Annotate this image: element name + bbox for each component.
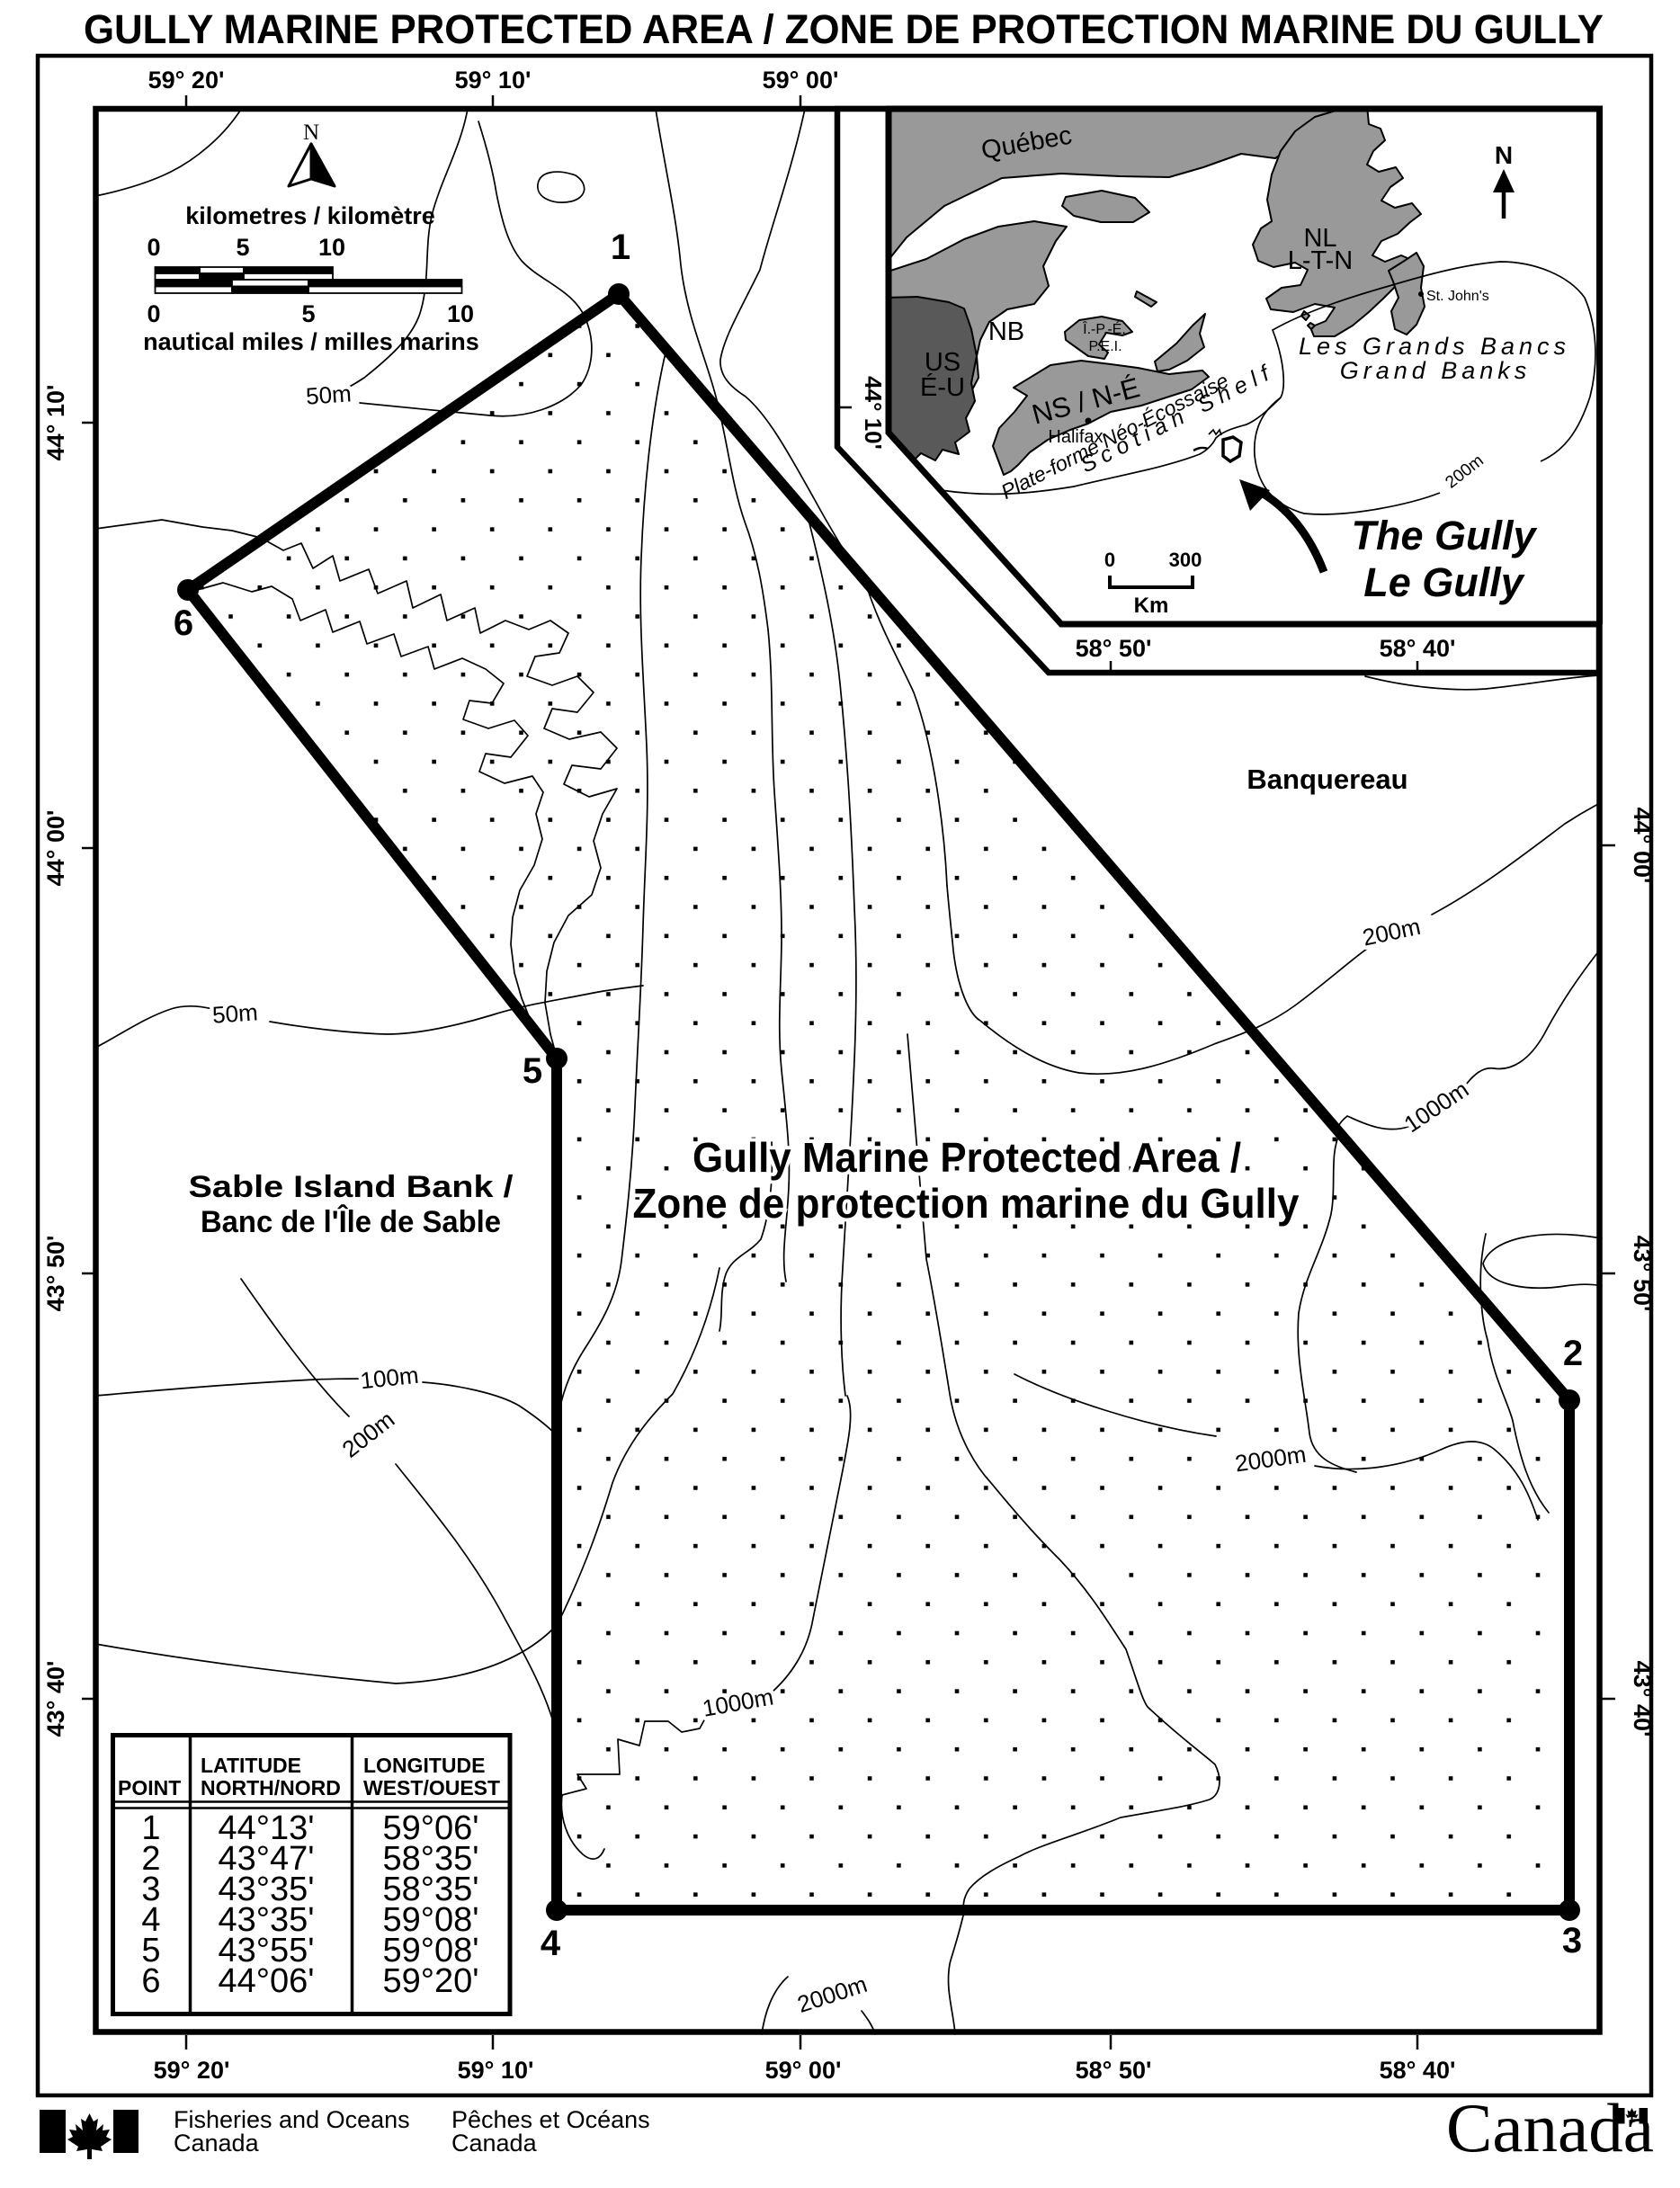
svg-text:Gully Marine Protected Area /: Gully Marine Protected Area / [693, 1134, 1241, 1181]
svg-text:58° 50': 58° 50' [1076, 2057, 1152, 2084]
svg-text:4: 4 [541, 1924, 561, 1963]
svg-text:Les Grands Bancs: Les Grands Bancs [1299, 333, 1570, 360]
svg-text:GULLY MARINE PROTECTED AREA /: GULLY MARINE PROTECTED AREA / ZONE DE PR… [84, 6, 1604, 52]
svg-text:58° 40': 58° 40' [1380, 635, 1456, 662]
svg-text:0: 0 [1104, 549, 1115, 571]
svg-text:59° 20': 59° 20' [148, 67, 225, 94]
svg-text:6: 6 [141, 1962, 160, 2000]
svg-text:Zone de protection marine du G: Zone de protection marine du Gully [633, 1180, 1300, 1227]
svg-text:50m: 50m [211, 998, 259, 1028]
svg-text:6: 6 [174, 603, 193, 643]
svg-text:59° 10': 59° 10' [455, 67, 532, 94]
svg-text:59°20': 59°20' [383, 1962, 479, 2000]
svg-text:Le Gully: Le Gully [1363, 559, 1525, 605]
svg-text:Î.-P.-É.: Î.-P.-É. [1082, 320, 1126, 337]
svg-text:5: 5 [301, 300, 315, 327]
svg-text:Sable Island Bank /: Sable Island Bank / [189, 1170, 514, 1204]
svg-text:LONGITUDE: LONGITUDE [363, 1754, 485, 1777]
svg-text:59° 00': 59° 00' [765, 2057, 842, 2084]
svg-text:Canada: Canada [451, 2130, 538, 2157]
svg-text:43° 50': 43° 50' [1629, 1236, 1656, 1312]
svg-text:Banquereau: Banquereau [1247, 764, 1407, 795]
svg-text:5: 5 [523, 1051, 542, 1091]
svg-text:10: 10 [447, 300, 474, 327]
svg-text:44° 00': 44° 00' [1629, 808, 1656, 884]
svg-text:44° 00': 44° 00' [42, 810, 69, 887]
svg-text:The Gully: The Gully [1351, 513, 1537, 558]
svg-text:58° 40': 58° 40' [1380, 2057, 1456, 2084]
svg-text:Banc de l'Île de Sable: Banc de l'Île de Sable [201, 1205, 501, 1239]
svg-text:44° 10': 44° 10' [860, 376, 887, 450]
svg-text:N: N [1495, 141, 1513, 169]
svg-text:kilometres / kilomètre: kilometres / kilomètre [185, 202, 435, 229]
svg-text:WEST/OUEST: WEST/OUEST [363, 1776, 500, 1800]
svg-text:44°06': 44°06' [219, 1962, 315, 2000]
svg-text:10: 10 [318, 234, 345, 261]
svg-text:2: 2 [1563, 1334, 1583, 1373]
svg-text:3: 3 [1562, 1921, 1582, 1960]
svg-text:N: N [303, 121, 319, 145]
svg-text:L-T-N: L-T-N [1288, 246, 1354, 275]
svg-text:nautical miles / milles marins: nautical miles / milles marins [143, 328, 479, 355]
svg-text:59° 10': 59° 10' [458, 2057, 534, 2084]
svg-text:Km: Km [1134, 594, 1169, 618]
svg-text:43° 40': 43° 40' [1629, 1661, 1656, 1737]
svg-text:59° 20': 59° 20' [154, 2057, 230, 2084]
svg-text:NORTH/NORD: NORTH/NORD [201, 1776, 341, 1800]
svg-text:5: 5 [236, 234, 249, 261]
svg-text:St. John's: St. John's [1426, 289, 1489, 304]
svg-text:Canada: Canada [1446, 2089, 1654, 2166]
svg-text:50m: 50m [305, 380, 353, 409]
svg-text:NB: NB [988, 317, 1024, 346]
svg-text:POINT: POINT [118, 1776, 181, 1800]
svg-text:Canada: Canada [174, 2130, 260, 2157]
svg-text:300: 300 [1169, 549, 1202, 571]
svg-text:LATITUDE: LATITUDE [201, 1754, 301, 1777]
svg-text:0: 0 [147, 300, 160, 327]
svg-text:59° 00': 59° 00' [763, 67, 839, 94]
svg-text:P.E.I.: P.E.I. [1088, 339, 1121, 354]
svg-text:0: 0 [147, 234, 160, 261]
svg-text:É-U: É-U [920, 372, 965, 402]
svg-text:1: 1 [611, 228, 630, 267]
svg-text:44° 10': 44° 10' [42, 385, 69, 461]
svg-text:43° 40': 43° 40' [42, 1661, 69, 1737]
svg-text:Grand Banks: Grand Banks [1340, 357, 1532, 384]
svg-text:58° 50': 58° 50' [1076, 635, 1152, 662]
svg-text:43° 50': 43° 50' [42, 1236, 69, 1312]
